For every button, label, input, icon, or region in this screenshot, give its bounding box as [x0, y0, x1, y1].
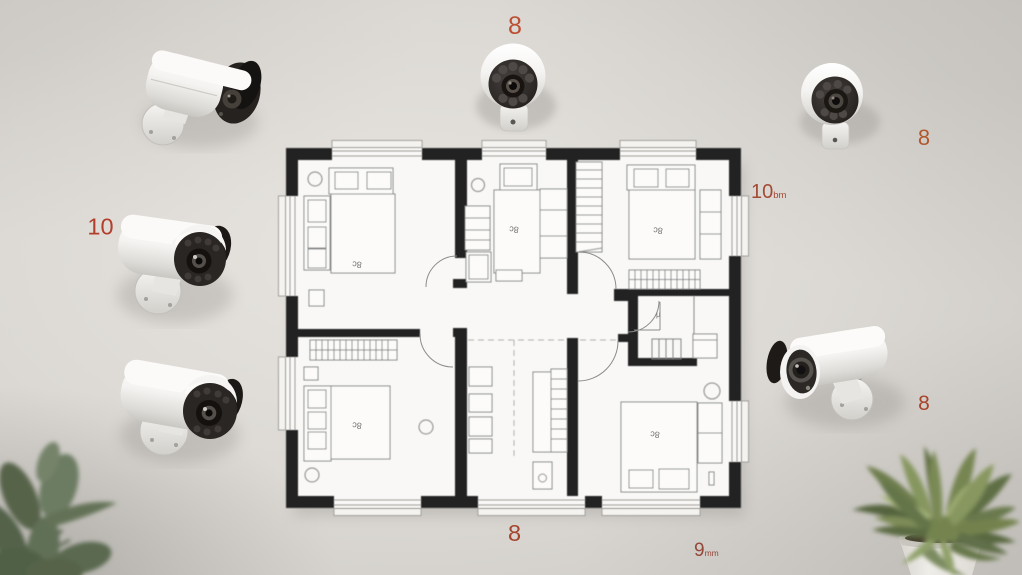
svg-text:8c: 8c [508, 224, 519, 235]
svg-text:μ: μ [656, 310, 661, 319]
svg-text:8: 8 [918, 125, 930, 150]
svg-text:8: 8 [508, 520, 521, 546]
svg-text:8: 8 [918, 392, 930, 415]
svg-text:8c: 8c [351, 420, 362, 431]
svg-text:8c: 8c [351, 259, 362, 270]
svg-text:8c: 8c [652, 225, 663, 236]
svg-text:8c: 8c [649, 429, 660, 440]
svg-text:10: 10 [87, 214, 113, 240]
svg-text:8: 8 [508, 12, 522, 40]
